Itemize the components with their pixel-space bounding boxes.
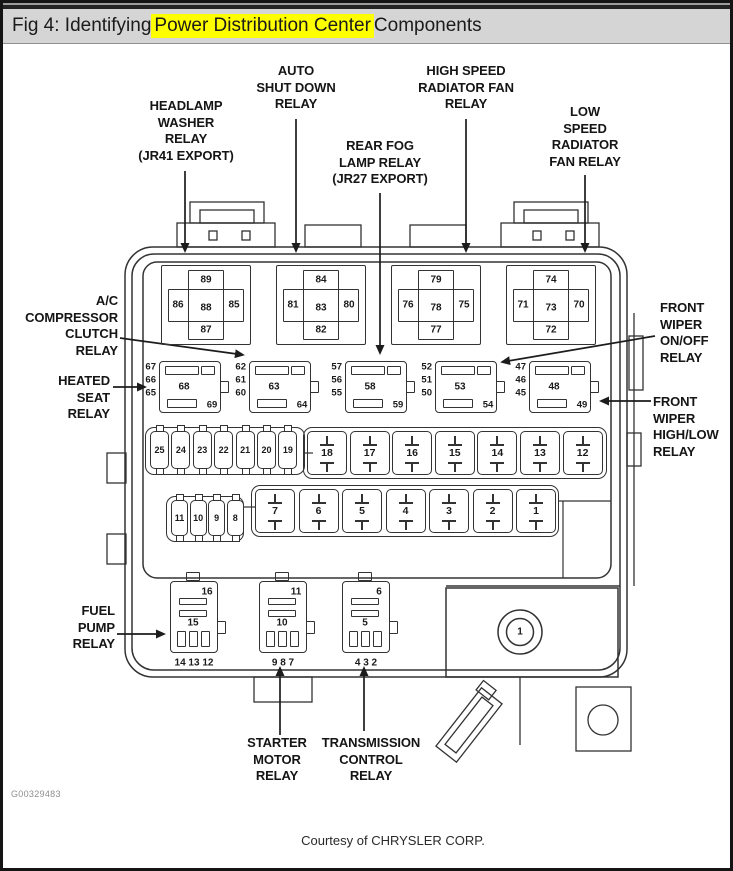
relay-shape: [443, 399, 473, 408]
fuse-number: 4: [403, 505, 409, 517]
relay-cavity-number: 58: [364, 382, 375, 393]
fuse-number: 25: [154, 445, 164, 455]
relay-pin-number: 45: [515, 388, 526, 399]
relay-pin-number: 55: [331, 388, 342, 399]
relay-shape: [189, 631, 198, 647]
fuse-number: 11: [175, 513, 185, 523]
relay-cavity-number: 70: [573, 300, 584, 311]
relay-cavity-number: 80: [343, 300, 354, 311]
fuse-number: 12: [577, 447, 589, 459]
fuse-element-glyph: [533, 462, 547, 472]
fuse-element-glyph: [363, 436, 377, 446]
relay-shape: [220, 381, 229, 393]
relay-pin-number: 14 13 12: [175, 658, 214, 669]
fuse-number: 10: [193, 513, 203, 523]
fuse-number: 2: [490, 505, 496, 517]
relay-cavity-number: 82: [315, 325, 326, 336]
relay-shape: [387, 366, 401, 375]
fuse-number: 15: [449, 447, 461, 459]
relay-shape: [406, 381, 415, 393]
fuse-element-glyph: [529, 494, 543, 504]
relay-shape: [179, 610, 207, 617]
fuse-element-glyph: [448, 462, 462, 472]
relay-shape: [201, 366, 215, 375]
callout-front-wiper-high-low-relay: FRONT WIPER HIGH/LOW RELAY: [653, 394, 733, 460]
fuse-number: 16: [406, 447, 418, 459]
fuse-element-glyph: [363, 462, 377, 472]
relay-shape: [496, 381, 505, 393]
relay-pin-number: 67: [145, 362, 156, 373]
relay-cavity-number: 74: [545, 275, 556, 286]
fuse-element-glyph: [490, 436, 504, 446]
fuse-element-glyph: [448, 436, 462, 446]
fuse-element-glyph: [405, 436, 419, 446]
fuse-element-glyph: [268, 520, 282, 530]
fuse-element-glyph: [399, 520, 413, 530]
relay-cavity-number: 11: [291, 587, 302, 598]
relay-shape: [201, 631, 210, 647]
fuse-element-glyph: [268, 494, 282, 504]
relay-pin-number: 49: [577, 400, 588, 411]
relay-shape: [268, 598, 296, 605]
relay-cavity-number: 81: [287, 300, 298, 311]
relay-cavity-number: 77: [430, 325, 441, 336]
fuse-number: 19: [283, 445, 293, 455]
title-highlight: Power Distribution Center: [151, 14, 373, 38]
relay-shape: [351, 610, 379, 617]
fuse-element-glyph: [486, 520, 500, 530]
fuse-element-glyph: [355, 520, 369, 530]
relay-pin-number: 59: [393, 400, 404, 411]
relay-pin-number: 57: [331, 362, 342, 373]
relay-shape: [351, 598, 379, 605]
relay-shape: [477, 366, 491, 375]
relay-shape: [186, 572, 200, 581]
callout-low-speed-radiator-fan-relay: LOW SPEED RADIATOR FAN RELAY: [530, 104, 640, 170]
relay-shape: [361, 631, 370, 647]
relay-cavity-number: 88: [200, 303, 211, 314]
relay-pin-number: 66: [145, 375, 156, 386]
callout-fuel-pump-relay: FUEL PUMP RELAY: [43, 603, 115, 653]
relay-shape: [353, 399, 383, 408]
relay-cavity-number: 71: [517, 300, 528, 311]
callout-high-speed-radiator-fan-relay: HIGH SPEED RADIATOR FAN RELAY: [401, 63, 531, 113]
fuse-element-glyph: [576, 462, 590, 472]
relay-cavity-number: 75: [458, 300, 469, 311]
relay-cavity-number: 76: [402, 300, 413, 311]
callout-transmission-control-relay: TRANSMISSION CONTROL RELAY: [306, 735, 436, 785]
relay-pin-number: 47: [515, 362, 526, 373]
fuse-number: 21: [240, 445, 250, 455]
fuse-element-glyph: [576, 436, 590, 446]
relay-pin-number: 51: [421, 375, 432, 386]
relay-shape: [275, 572, 289, 581]
relay-shape: [217, 621, 226, 634]
relay-cavity-number: 89: [200, 275, 211, 286]
figure-title-prefix: Fig 4: Identifying: [12, 15, 151, 37]
relay-shape: [177, 631, 186, 647]
relay-shape: [291, 366, 305, 375]
fuse-number: 22: [219, 445, 229, 455]
relay-pin-number: 69: [207, 400, 218, 411]
fuse-element-glyph: [486, 494, 500, 504]
relay-shape: [310, 381, 319, 393]
relay-pin-number: 54: [483, 400, 494, 411]
callout-heated-seat-relay: HEATED SEAT RELAY: [38, 373, 110, 423]
callout-auto-shut-down-relay: AUTO SHUT DOWN RELAY: [236, 63, 356, 113]
relay-pin-number: 9 8 7: [272, 658, 294, 669]
relay-pin-number: 64: [297, 400, 308, 411]
relay-cavity-number: 53: [454, 382, 465, 393]
relay-cavity-number: 10: [276, 618, 287, 629]
fuse-number: 1: [533, 505, 539, 517]
relay-cavity-number: 86: [172, 300, 183, 311]
fuse-number: 17: [364, 447, 376, 459]
relay-pin-number: 62: [235, 362, 246, 373]
relay-pin-number: 61: [235, 375, 246, 386]
fuse-number: 18: [321, 447, 333, 459]
relay-shape: [535, 366, 569, 375]
fuse-element-glyph: [442, 520, 456, 530]
relay-cavity-number: 83: [315, 303, 326, 314]
relay-cavity-number: 79: [430, 275, 441, 286]
relay-shape: [349, 631, 358, 647]
fuse-element-glyph: [405, 462, 419, 472]
relay-cavity-number: 78: [430, 303, 441, 314]
relay-shape: [590, 381, 599, 393]
fuse-number: 8: [233, 513, 238, 523]
diagram-stage: 8986888587848183808279767875777471737072…: [3, 3, 733, 871]
relay-cavity-number: 87: [200, 325, 211, 336]
relay-cavity-number: 73: [545, 303, 556, 314]
fuse-element-glyph: [312, 494, 326, 504]
relay-shape: [537, 399, 567, 408]
fuse-number: 3: [446, 505, 452, 517]
fuse-element-glyph: [533, 436, 547, 446]
relay-pin-number: 65: [145, 388, 156, 399]
relay-pin-number: 56: [331, 375, 342, 386]
figure-title-suffix: Components: [374, 15, 482, 37]
relay-shape: [278, 631, 287, 647]
relay-cavity-number: 63: [268, 382, 279, 393]
fuse-number: 13: [534, 447, 546, 459]
relay-shape: [290, 631, 299, 647]
fuse-number: 20: [261, 445, 271, 455]
fuse-number: 7: [272, 505, 278, 517]
callout-rear-fog-lamp-relay: REAR FOG LAMP RELAY (JR27 EXPORT): [310, 138, 450, 188]
fuse-number: 14: [492, 447, 504, 459]
fuse-element-glyph: [320, 436, 334, 446]
relay-cavity-number: 68: [178, 382, 189, 393]
relay-shape: [571, 366, 585, 375]
figure-title-bar: Fig 4: Identifying Power Distribution Ce…: [3, 9, 730, 44]
relay-shape: [255, 366, 289, 375]
relay-cavity-number: 16: [201, 587, 212, 598]
fuse-number: 5: [359, 505, 365, 517]
fuse-number: 6: [316, 505, 322, 517]
relay-shape: [358, 572, 372, 581]
fuse-element-glyph: [490, 462, 504, 472]
fuse-number: 24: [176, 445, 186, 455]
fuse-element-glyph: [355, 494, 369, 504]
relay-cavity-number: 85: [228, 300, 239, 311]
relay-shape: [179, 598, 207, 605]
relay-shape: [268, 610, 296, 617]
relay-pin-number: 46: [515, 375, 526, 386]
callout-ac-compressor-clutch-relay: A/C COMPRESSOR CLUTCH RELAY: [19, 293, 118, 359]
callout-headlamp-washer-relay: HEADLAMP WASHER RELAY (JR41 EXPORT): [116, 98, 256, 164]
relay-cavity-number: 48: [548, 382, 559, 393]
fuse-element-glyph: [442, 494, 456, 504]
relay-pin-number: 50: [421, 388, 432, 399]
relay-shape: [389, 621, 398, 634]
relay-cavity-number: 6: [376, 587, 382, 598]
relay-pin-number: 60: [235, 388, 246, 399]
relay-shape: [351, 366, 385, 375]
relay-shape: [306, 621, 315, 634]
relay-shape: [257, 399, 287, 408]
cavity-number: 1: [517, 627, 523, 638]
relay-shape: [373, 631, 382, 647]
relay-cavity-number: 5: [362, 618, 368, 629]
relay-pin-number: 4 3 2: [355, 658, 377, 669]
fuse-element-glyph: [312, 520, 326, 530]
relay-pin-number: 52: [421, 362, 432, 373]
fuse-element-glyph: [399, 494, 413, 504]
fuse-number: 23: [197, 445, 207, 455]
fuse-element-glyph: [529, 520, 543, 530]
fuse-element-glyph: [320, 462, 334, 472]
relay-shape: [165, 366, 199, 375]
relay-cavity-number: 72: [545, 325, 556, 336]
relay-cavity-number: 15: [187, 618, 198, 629]
relay-cavity-number: 84: [315, 275, 326, 286]
figure-page: Fig 4: Identifying Power Distribution Ce…: [0, 0, 733, 871]
relay-shape: [266, 631, 275, 647]
relay-shape: [441, 366, 475, 375]
fuse-number: 9: [214, 513, 219, 523]
callout-front-wiper-on-off-relay: FRONT WIPER ON/OFF RELAY: [660, 300, 733, 366]
relay-shape: [167, 399, 197, 408]
